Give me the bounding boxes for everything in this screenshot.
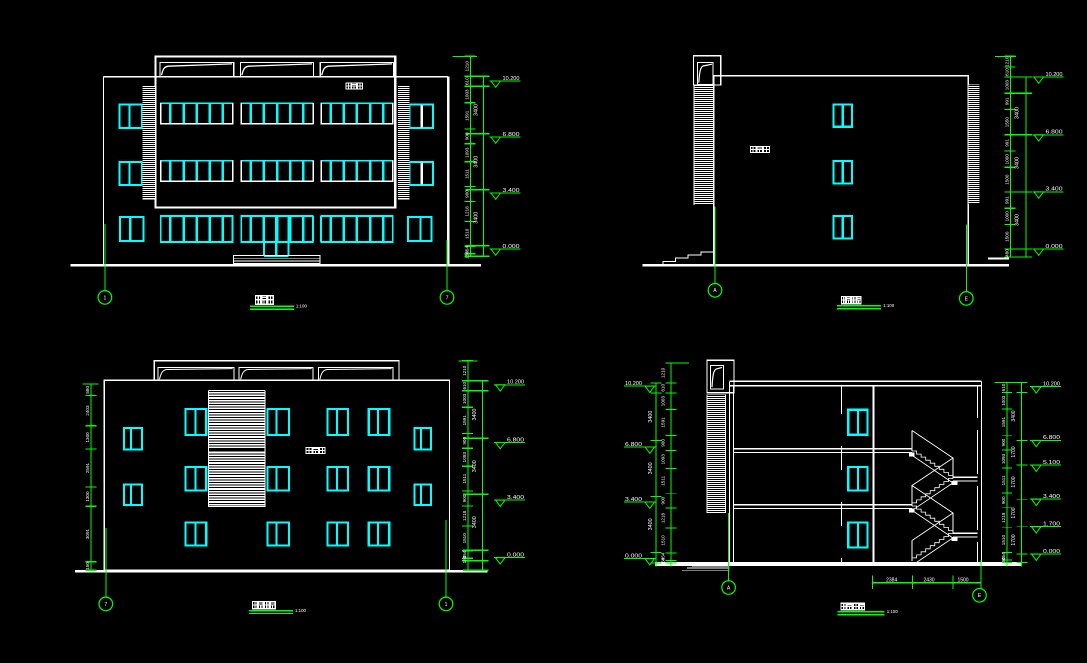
- svg-text:3400: 3400: [1015, 214, 1021, 226]
- svg-text:1511: 1511: [1001, 475, 1006, 485]
- svg-text:610: 610: [462, 381, 467, 389]
- svg-text:6.800: 6.800: [1046, 130, 1063, 136]
- svg-text:1: 1: [103, 295, 106, 301]
- svg-text:10.200: 10.200: [1043, 382, 1060, 388]
- svg-text:1511: 1511: [661, 475, 666, 485]
- svg-text:900: 900: [1001, 496, 1006, 504]
- svg-text:1003: 1003: [1004, 80, 1009, 91]
- svg-text:3091: 3091: [85, 528, 90, 539]
- svg-text:1093: 1093: [661, 454, 666, 465]
- svg-text:1700: 1700: [1011, 507, 1017, 518]
- svg-text:6.800: 6.800: [1043, 435, 1060, 441]
- svg-text:1700: 1700: [1011, 476, 1017, 487]
- svg-text:1093: 1093: [462, 452, 467, 463]
- svg-text:E: E: [965, 296, 969, 302]
- svg-text:900: 900: [661, 496, 666, 504]
- svg-text:1591: 1591: [462, 415, 467, 426]
- svg-text:1093: 1093: [1001, 453, 1006, 464]
- svg-text:1:100: 1:100: [883, 303, 894, 308]
- svg-text:10.200: 10.200: [507, 380, 524, 386]
- svg-text:6.800: 6.800: [503, 132, 520, 138]
- svg-text:0.000: 0.000: [503, 244, 520, 250]
- svg-text:10.200: 10.200: [1046, 72, 1063, 78]
- svg-text:1218: 1218: [1001, 512, 1006, 523]
- svg-text:0.000: 0.000: [507, 553, 524, 559]
- svg-text:A: A: [713, 288, 717, 294]
- svg-text:1510: 1510: [464, 228, 469, 239]
- svg-text:610: 610: [661, 384, 666, 392]
- svg-text:0.000: 0.000: [1046, 244, 1063, 250]
- svg-text:610: 610: [464, 77, 469, 85]
- svg-text:2403: 2403: [85, 405, 90, 416]
- svg-text:1218: 1218: [464, 206, 469, 217]
- svg-text:1550: 1550: [1004, 117, 1009, 128]
- svg-text:1093: 1093: [464, 147, 469, 158]
- svg-text:1300: 1300: [85, 491, 90, 502]
- svg-text:3.400: 3.400: [1043, 494, 1060, 500]
- svg-text:3400: 3400: [472, 409, 478, 421]
- svg-text:1510: 1510: [1001, 535, 1006, 546]
- svg-text:A: A: [727, 585, 731, 591]
- svg-text:1500: 1500: [1004, 231, 1009, 242]
- svg-text:580: 580: [85, 386, 90, 394]
- svg-text:991: 991: [1004, 139, 1009, 147]
- svg-text:1:100: 1:100: [296, 303, 307, 308]
- svg-text:991: 991: [1004, 97, 1009, 105]
- svg-text:1003: 1003: [462, 393, 467, 404]
- svg-text:1003: 1003: [661, 396, 666, 407]
- svg-text:3400: 3400: [648, 411, 654, 423]
- svg-text:610: 610: [1004, 68, 1009, 76]
- svg-text:1511: 1511: [464, 169, 469, 179]
- svg-text:3400: 3400: [472, 516, 478, 528]
- svg-text:900: 900: [464, 190, 469, 198]
- svg-text:3400: 3400: [472, 460, 478, 472]
- svg-text:E: E: [978, 593, 982, 599]
- svg-text:1210: 1210: [661, 367, 666, 378]
- svg-text:900: 900: [462, 437, 467, 445]
- svg-text:6.800: 6.800: [507, 437, 524, 443]
- svg-text:1300: 1300: [85, 432, 90, 443]
- svg-text:1500: 1500: [1004, 174, 1009, 185]
- svg-text:1:100: 1:100: [295, 608, 306, 613]
- svg-text:610: 610: [1001, 383, 1006, 391]
- svg-text:3400: 3400: [648, 462, 654, 474]
- svg-text:900: 900: [464, 132, 469, 140]
- svg-text:1700: 1700: [1011, 446, 1017, 457]
- svg-text:5.100: 5.100: [1043, 460, 1060, 466]
- svg-text:2430: 2430: [923, 577, 934, 583]
- svg-text:3.400: 3.400: [503, 188, 520, 194]
- svg-text:1003: 1003: [1001, 395, 1006, 406]
- svg-text:0.000: 0.000: [625, 553, 642, 559]
- svg-text:1000: 1000: [1004, 154, 1009, 165]
- svg-text:1.700: 1.700: [1043, 522, 1060, 528]
- svg-text:3400: 3400: [474, 212, 480, 224]
- svg-text:3.400: 3.400: [1046, 187, 1063, 193]
- svg-text:900: 900: [462, 494, 467, 502]
- svg-text:6.800: 6.800: [625, 442, 642, 448]
- svg-text:1591: 1591: [661, 417, 666, 428]
- svg-text:3400: 3400: [474, 104, 480, 116]
- svg-text:10.200: 10.200: [503, 76, 520, 82]
- svg-text:3400: 3400: [648, 518, 654, 530]
- svg-text:7: 7: [446, 295, 449, 301]
- svg-text:3.400: 3.400: [625, 497, 642, 503]
- svg-text:0.000: 0.000: [1043, 549, 1060, 555]
- svg-text:7: 7: [104, 602, 107, 608]
- svg-text:1210: 1210: [1004, 56, 1009, 67]
- svg-text:150: 150: [462, 555, 467, 563]
- svg-text:991: 991: [1004, 196, 1009, 204]
- svg-text:1510: 1510: [661, 535, 666, 546]
- svg-text:3400: 3400: [1015, 157, 1021, 169]
- svg-text:150: 150: [1001, 557, 1006, 565]
- svg-text:150: 150: [85, 562, 90, 570]
- svg-text:480: 480: [1004, 249, 1009, 257]
- svg-text:1218: 1218: [462, 510, 467, 521]
- svg-text:1510: 1510: [462, 533, 467, 544]
- svg-text:3400: 3400: [1011, 410, 1017, 421]
- svg-text:1591: 1591: [1001, 417, 1006, 428]
- svg-text:3.400: 3.400: [507, 495, 524, 501]
- svg-text:2591: 2591: [85, 462, 90, 473]
- svg-text:1210: 1210: [462, 365, 467, 376]
- svg-text:10.200: 10.200: [625, 381, 642, 387]
- svg-text:3400: 3400: [1015, 107, 1021, 119]
- svg-text:1: 1: [445, 602, 448, 608]
- svg-text:1218: 1218: [661, 512, 666, 523]
- svg-text:900: 900: [661, 439, 666, 447]
- svg-text:1700: 1700: [1011, 534, 1017, 545]
- svg-text:1500: 1500: [957, 577, 968, 583]
- svg-text:1003: 1003: [464, 89, 469, 100]
- svg-text:1000: 1000: [1004, 211, 1009, 222]
- svg-text:2384: 2384: [886, 577, 897, 583]
- svg-text:150: 150: [464, 251, 469, 259]
- svg-text:1511: 1511: [462, 473, 467, 483]
- svg-text:1591: 1591: [464, 110, 469, 121]
- svg-text:1:100: 1:100: [887, 609, 898, 614]
- svg-text:150: 150: [661, 557, 666, 565]
- svg-text:900: 900: [1001, 438, 1006, 446]
- svg-text:3400: 3400: [474, 156, 480, 168]
- svg-text:1210: 1210: [464, 61, 469, 72]
